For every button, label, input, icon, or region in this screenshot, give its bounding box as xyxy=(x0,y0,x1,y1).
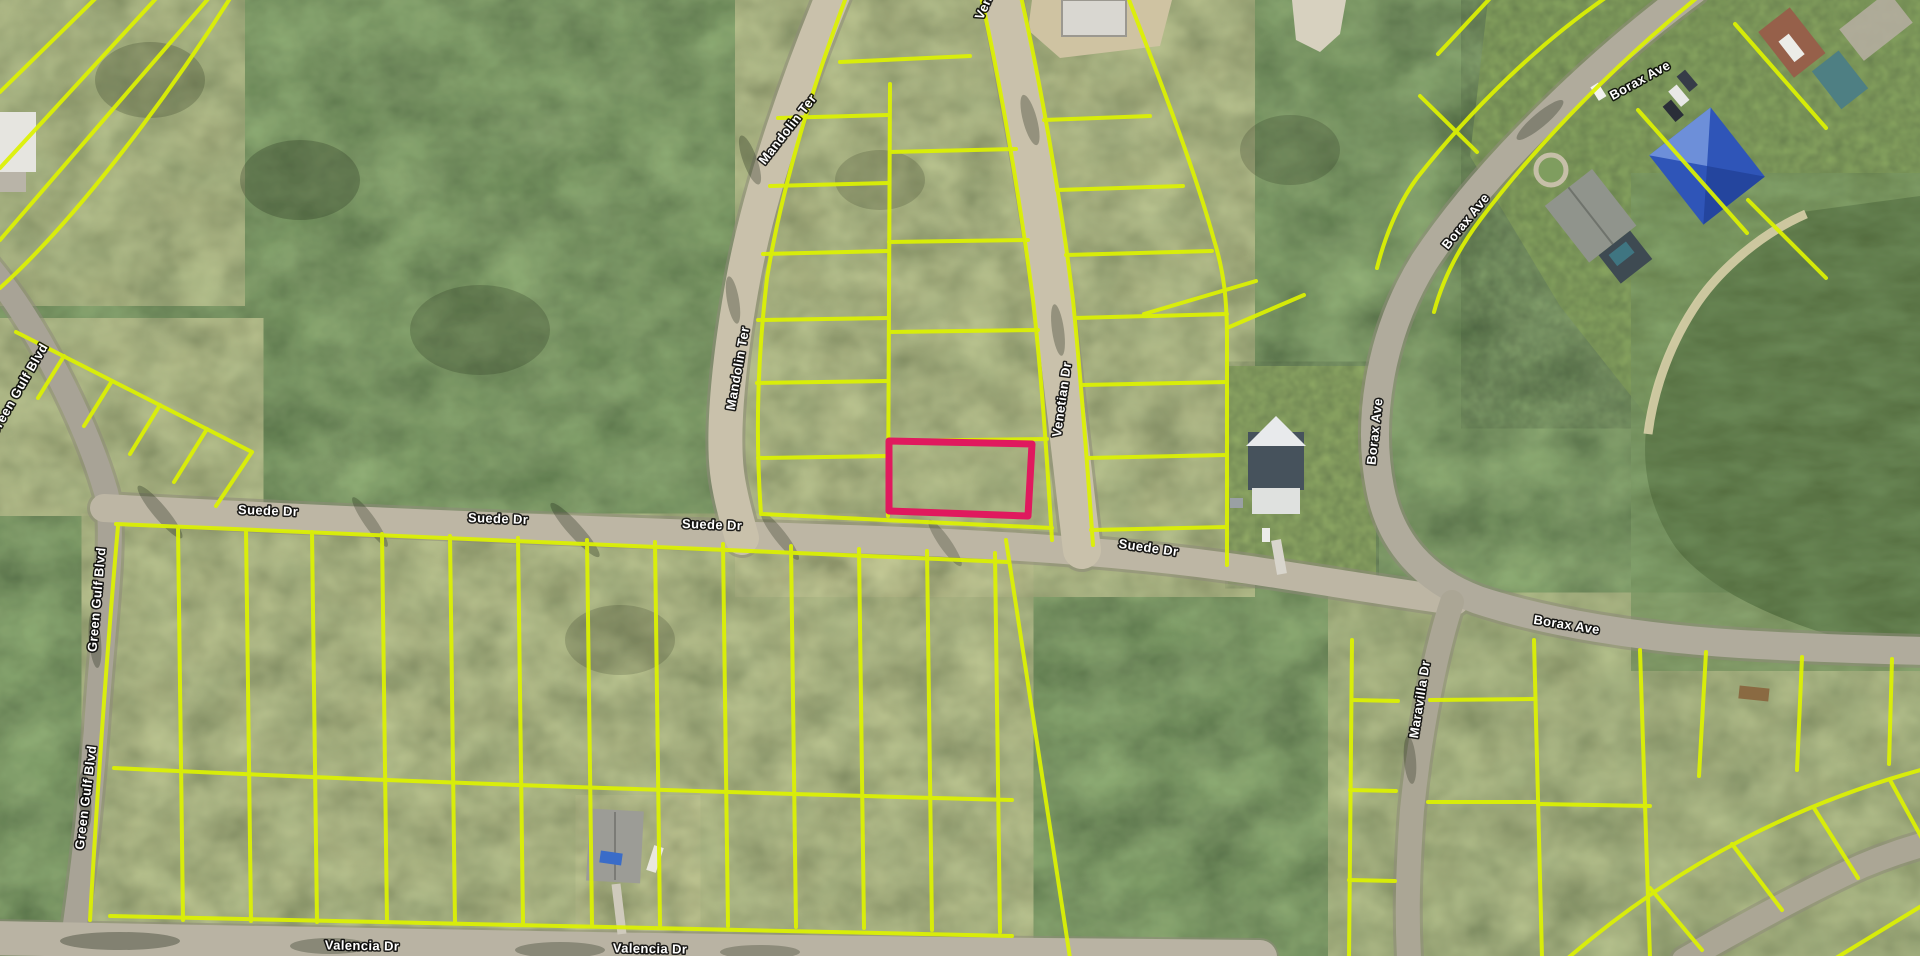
scrub-south-rows xyxy=(100,522,1015,938)
street-label-suede-dr: Suede Dr xyxy=(238,502,299,519)
driveway-left-edge xyxy=(0,172,26,192)
car xyxy=(1262,528,1270,542)
satellite-map[interactable]: Mandolin Ter Mandolin Ter Venetian Dr Ve… xyxy=(0,0,1920,956)
construction-building xyxy=(1062,0,1126,36)
garden-circle xyxy=(1536,155,1566,185)
street-label-suede-dr: Suede Dr xyxy=(468,510,529,527)
driveway xyxy=(1276,540,1282,574)
street-label-suede-dr: Suede Dr xyxy=(682,516,743,533)
scrub-center-block xyxy=(745,0,1245,585)
street-label-valencia-dr: Valencia Dr xyxy=(325,937,400,953)
street-label-valencia-dr: Valencia Dr xyxy=(613,940,688,956)
shed xyxy=(1230,498,1243,508)
